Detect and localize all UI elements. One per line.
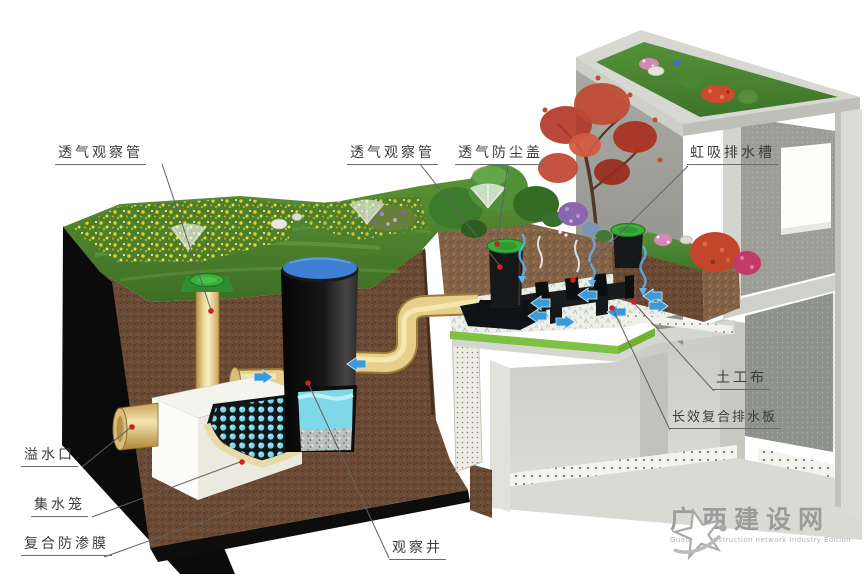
label-siphon-channel: 虹吸排水槽 (687, 145, 778, 165)
watermark: 广西建设网 Guangxi construction network Indus… (668, 506, 867, 544)
lawn-rock (271, 219, 287, 229)
label-vent-pipe-left: 透气观察管 (55, 145, 146, 165)
label-impermeable-membrane: 复合防渗膜 (21, 536, 112, 556)
scene-svg (0, 0, 867, 574)
overflow-pipe (113, 403, 158, 450)
illustration-stage: 透气观察管 透气观察管 透气防尘盖 虹吸排水槽 土工布 长效复合排水板 溢水口 … (0, 0, 867, 574)
label-overflow-port: 溢水口 (21, 447, 78, 467)
label-vent-pipe-mid: 透气观察管 (347, 145, 438, 165)
star-logo-icon (668, 506, 730, 564)
vent-pipe-2 (611, 224, 645, 269)
observation-well (281, 257, 359, 452)
label-drainage-board: 长效复合排水板 (669, 409, 780, 429)
well-blue-lid (283, 257, 357, 279)
label-dust-cover: 透气防尘盖 (455, 145, 546, 165)
label-observation-well: 观察井 (389, 540, 446, 560)
label-collection-cage: 集水笼 (31, 497, 88, 517)
label-geotextile: 土工布 (713, 370, 770, 390)
